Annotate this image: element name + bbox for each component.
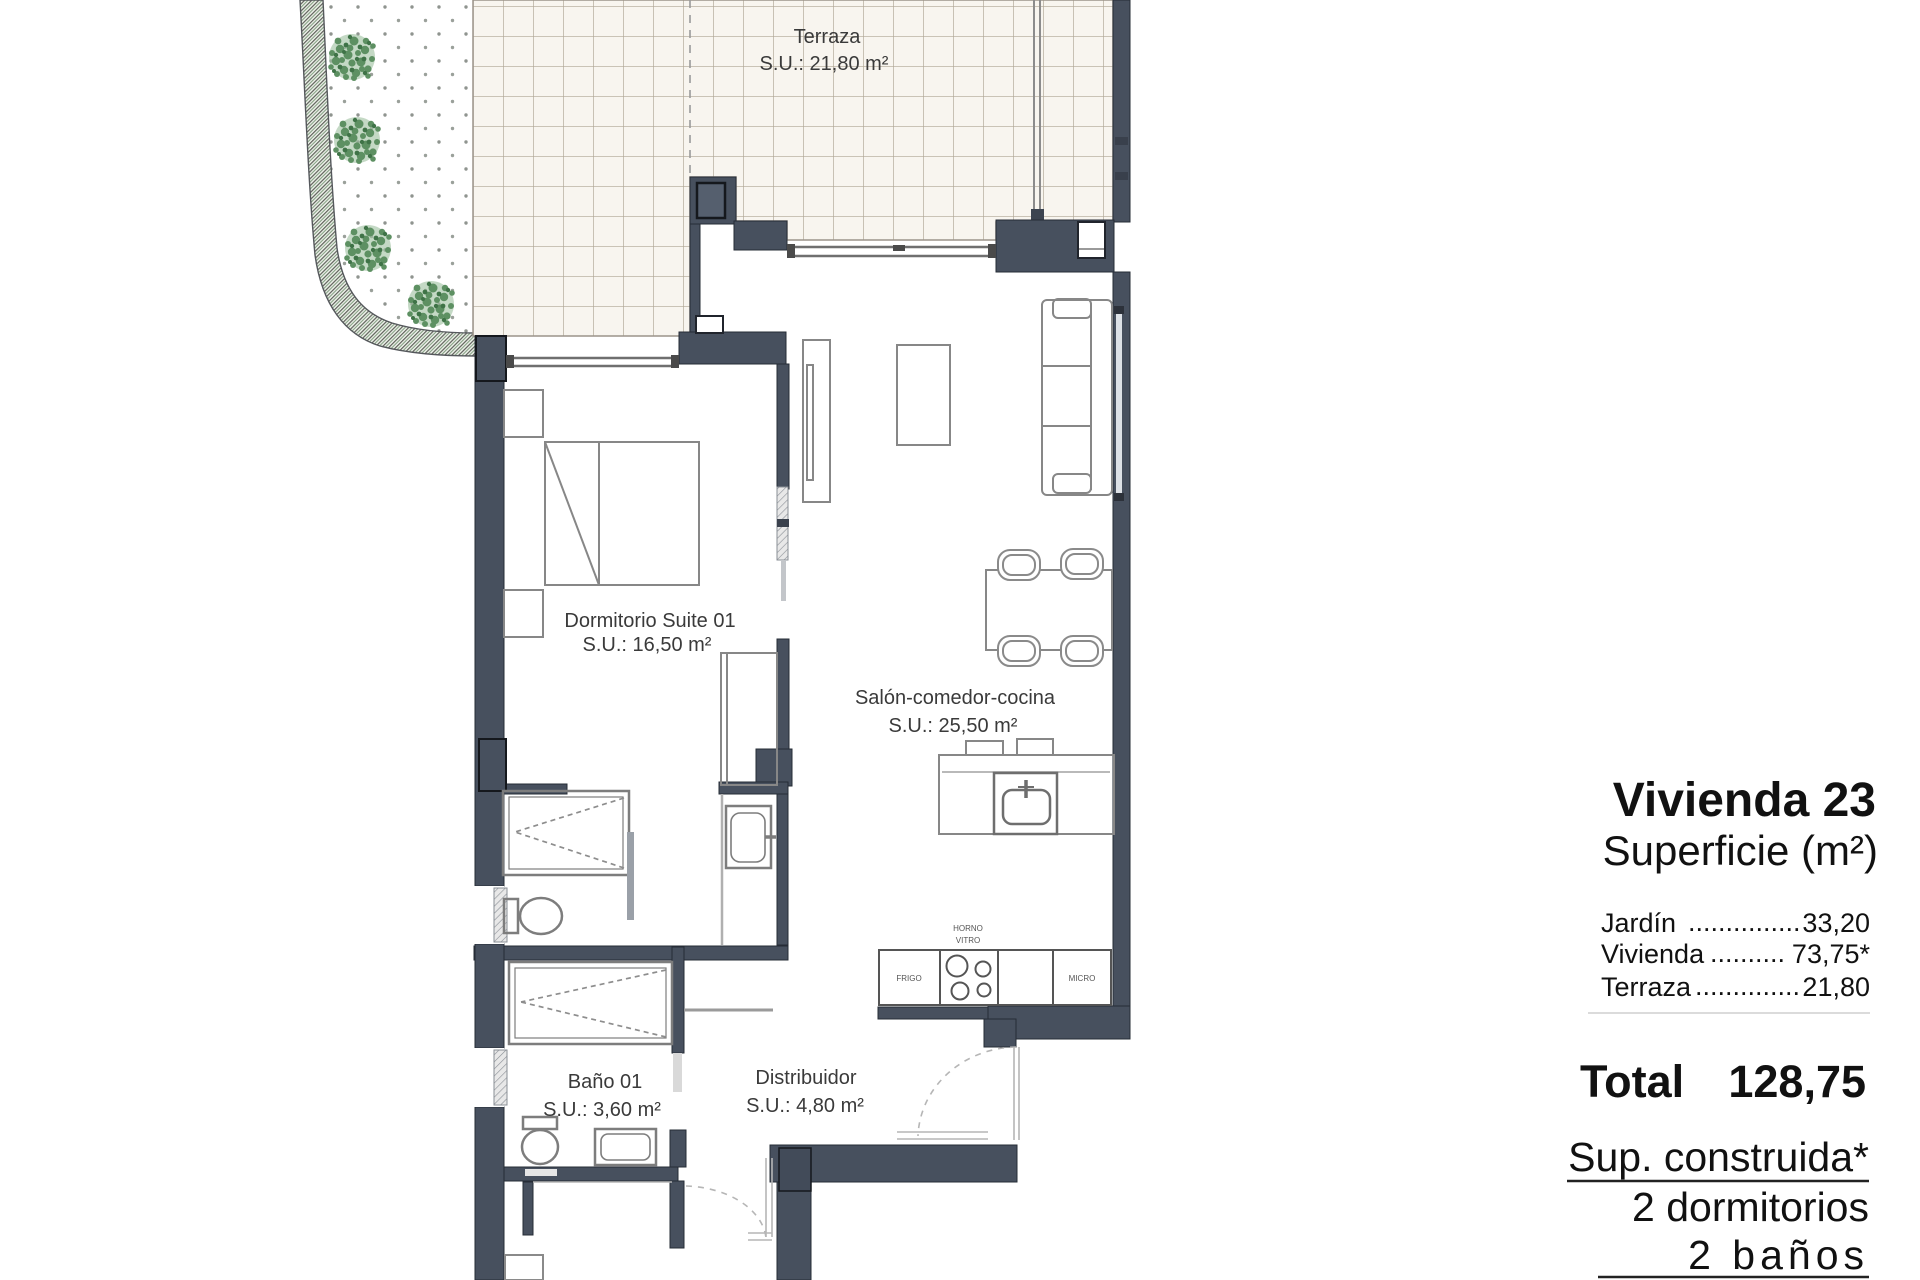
svg-text:S.U.: 4,80 m²: S.U.: 4,80 m² [746,1095,864,1117]
svg-text:Terraza: Terraza [1601,972,1692,1002]
svg-text:S.U.: 16,50 m²: S.U.: 16,50 m² [583,634,712,656]
svg-text:Jardín: Jardín [1601,908,1676,938]
svg-text:Dormitorio Suite 01: Dormitorio Suite 01 [564,610,735,632]
svg-text:Salón-comedor-cocina: Salón-comedor-cocina [855,687,1056,709]
svg-text:...............: ............... [1688,907,1801,937]
svg-text:S.U.: 21,80 m²: S.U.: 21,80 m² [760,53,889,75]
svg-text:Total: Total [1580,1056,1684,1107]
svg-text:Distribuidor: Distribuidor [755,1067,856,1089]
svg-text:2 baños: 2 baños [1688,1232,1869,1278]
svg-text:33,20: 33,20 [1802,908,1870,938]
svg-text:73,75*: 73,75* [1792,939,1871,969]
svg-text:S.U.: 25,50 m²: S.U.: 25,50 m² [889,715,1018,737]
svg-text:..........: .......... [1710,938,1785,968]
svg-text:Vivienda 23: Vivienda 23 [1613,774,1876,827]
svg-text:Superficie (m²): Superficie (m²) [1603,827,1878,874]
svg-text:21,80: 21,80 [1802,972,1870,1002]
svg-text:128,75: 128,75 [1728,1056,1866,1107]
svg-text:2 dormitorios: 2 dormitorios [1632,1184,1869,1230]
svg-text:Vivienda: Vivienda [1601,939,1705,969]
svg-text:S.U.: 3,60 m²: S.U.: 3,60 m² [543,1099,661,1121]
svg-text:FRIGO: FRIGO [896,974,921,983]
svg-text:Baño 01: Baño 01 [568,1071,643,1093]
svg-text:Sup. construida*: Sup. construida* [1568,1134,1869,1180]
svg-text:..............: .............. [1695,971,1800,1001]
svg-text:Terraza: Terraza [794,26,862,48]
svg-text:VITRO: VITRO [956,936,980,945]
svg-text:MICRO: MICRO [1069,974,1096,983]
svg-text:HORNO: HORNO [953,924,983,933]
